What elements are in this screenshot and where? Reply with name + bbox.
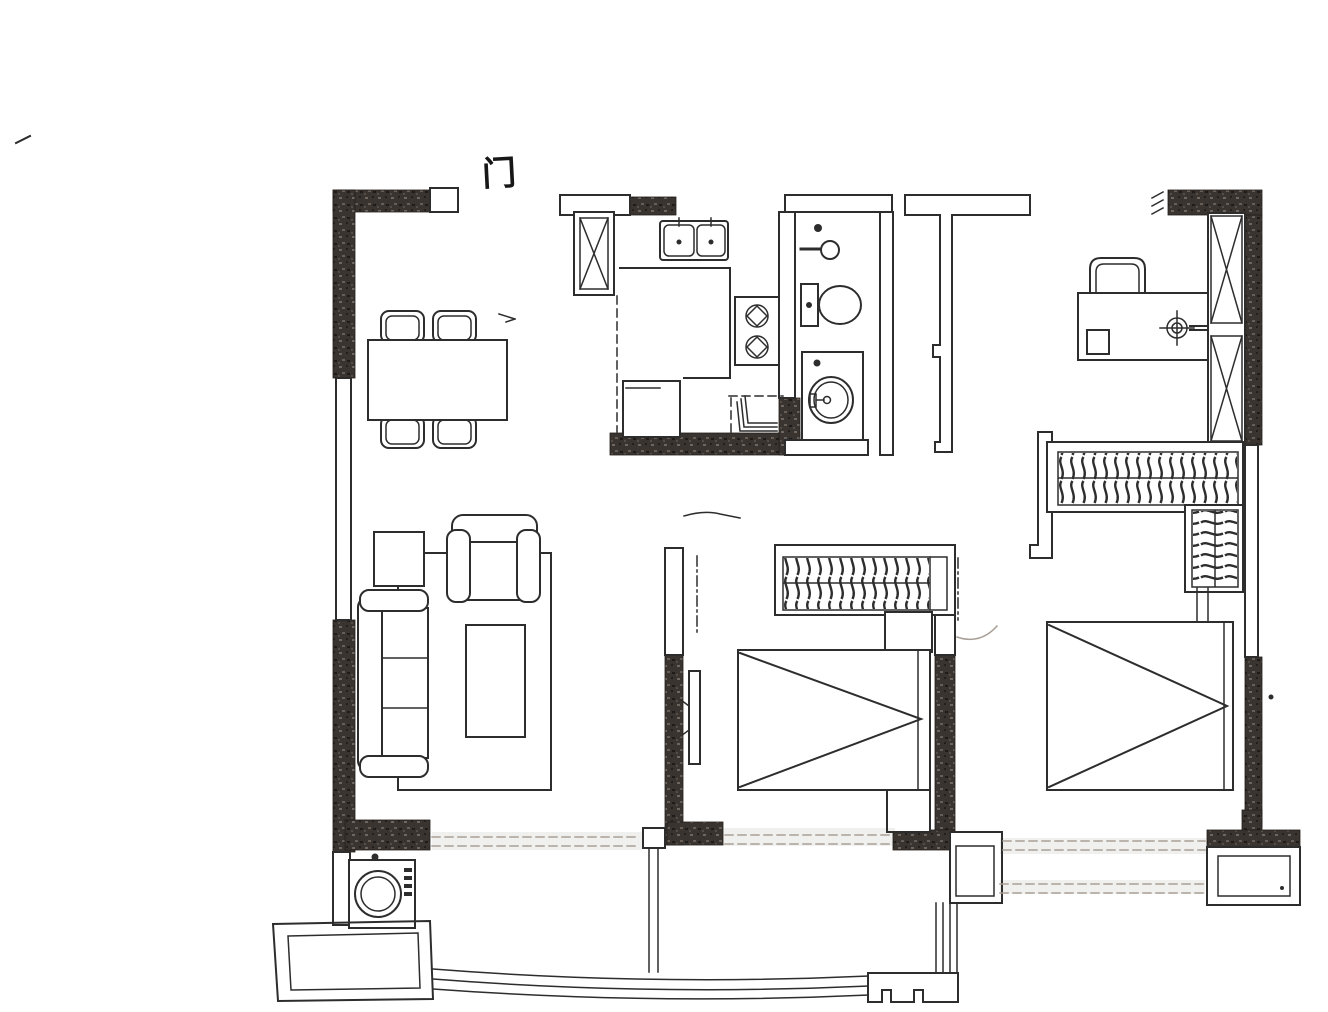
dining-chair bbox=[381, 311, 424, 343]
balcony-divider bbox=[649, 848, 658, 972]
kitchen-counter bbox=[620, 268, 730, 378]
side-table bbox=[374, 532, 424, 586]
shower-head bbox=[801, 241, 839, 259]
entry-door-label: 门 bbox=[481, 145, 520, 196]
hallway-t-wall bbox=[905, 195, 1030, 452]
bedroom-2 bbox=[1047, 442, 1243, 790]
desk-box bbox=[1087, 330, 1109, 354]
floor-drain bbox=[814, 224, 822, 232]
kitchen-sink bbox=[660, 218, 728, 260]
balcony bbox=[273, 832, 1300, 1002]
kitchen bbox=[617, 218, 783, 437]
living-room bbox=[358, 515, 551, 790]
double-bed bbox=[1047, 622, 1233, 790]
wardrobe-hangers bbox=[1047, 442, 1243, 512]
gas-stove bbox=[735, 297, 779, 365]
nightstand bbox=[885, 612, 932, 652]
balcony-railing bbox=[433, 969, 869, 999]
desk-chair bbox=[1090, 258, 1145, 296]
fridge bbox=[623, 381, 680, 437]
dining-chair bbox=[433, 311, 476, 343]
armchair bbox=[447, 515, 540, 602]
dining-area bbox=[368, 311, 507, 448]
dining-table bbox=[368, 340, 507, 420]
entry-pillar bbox=[430, 188, 458, 212]
coffee-table bbox=[466, 625, 525, 737]
sliding-window-lines bbox=[432, 828, 1207, 894]
floor-plan-drawing bbox=[0, 0, 1328, 1012]
door-swing-arc bbox=[957, 626, 997, 639]
toilet bbox=[801, 284, 861, 326]
ac-platform bbox=[1207, 847, 1300, 905]
double-bed bbox=[738, 650, 930, 790]
wardrobe-hangers-vertical bbox=[1185, 505, 1243, 592]
nightstand bbox=[887, 790, 930, 832]
floor-plan-scan: 门 bbox=[0, 0, 1328, 1012]
study-corner bbox=[1078, 258, 1208, 360]
kitchen-flue-shaft bbox=[574, 212, 614, 295]
left-window bbox=[336, 378, 351, 620]
balcony-divider-right bbox=[936, 832, 1002, 973]
wardrobe-connector bbox=[1197, 588, 1208, 622]
balcony-step bbox=[868, 973, 958, 1002]
wardrobe-hangers bbox=[775, 545, 955, 615]
planter-box bbox=[273, 921, 433, 1001]
tv-panel bbox=[681, 671, 700, 764]
sofa bbox=[358, 590, 428, 777]
folding-door bbox=[729, 396, 783, 436]
washing-machine bbox=[349, 854, 415, 929]
